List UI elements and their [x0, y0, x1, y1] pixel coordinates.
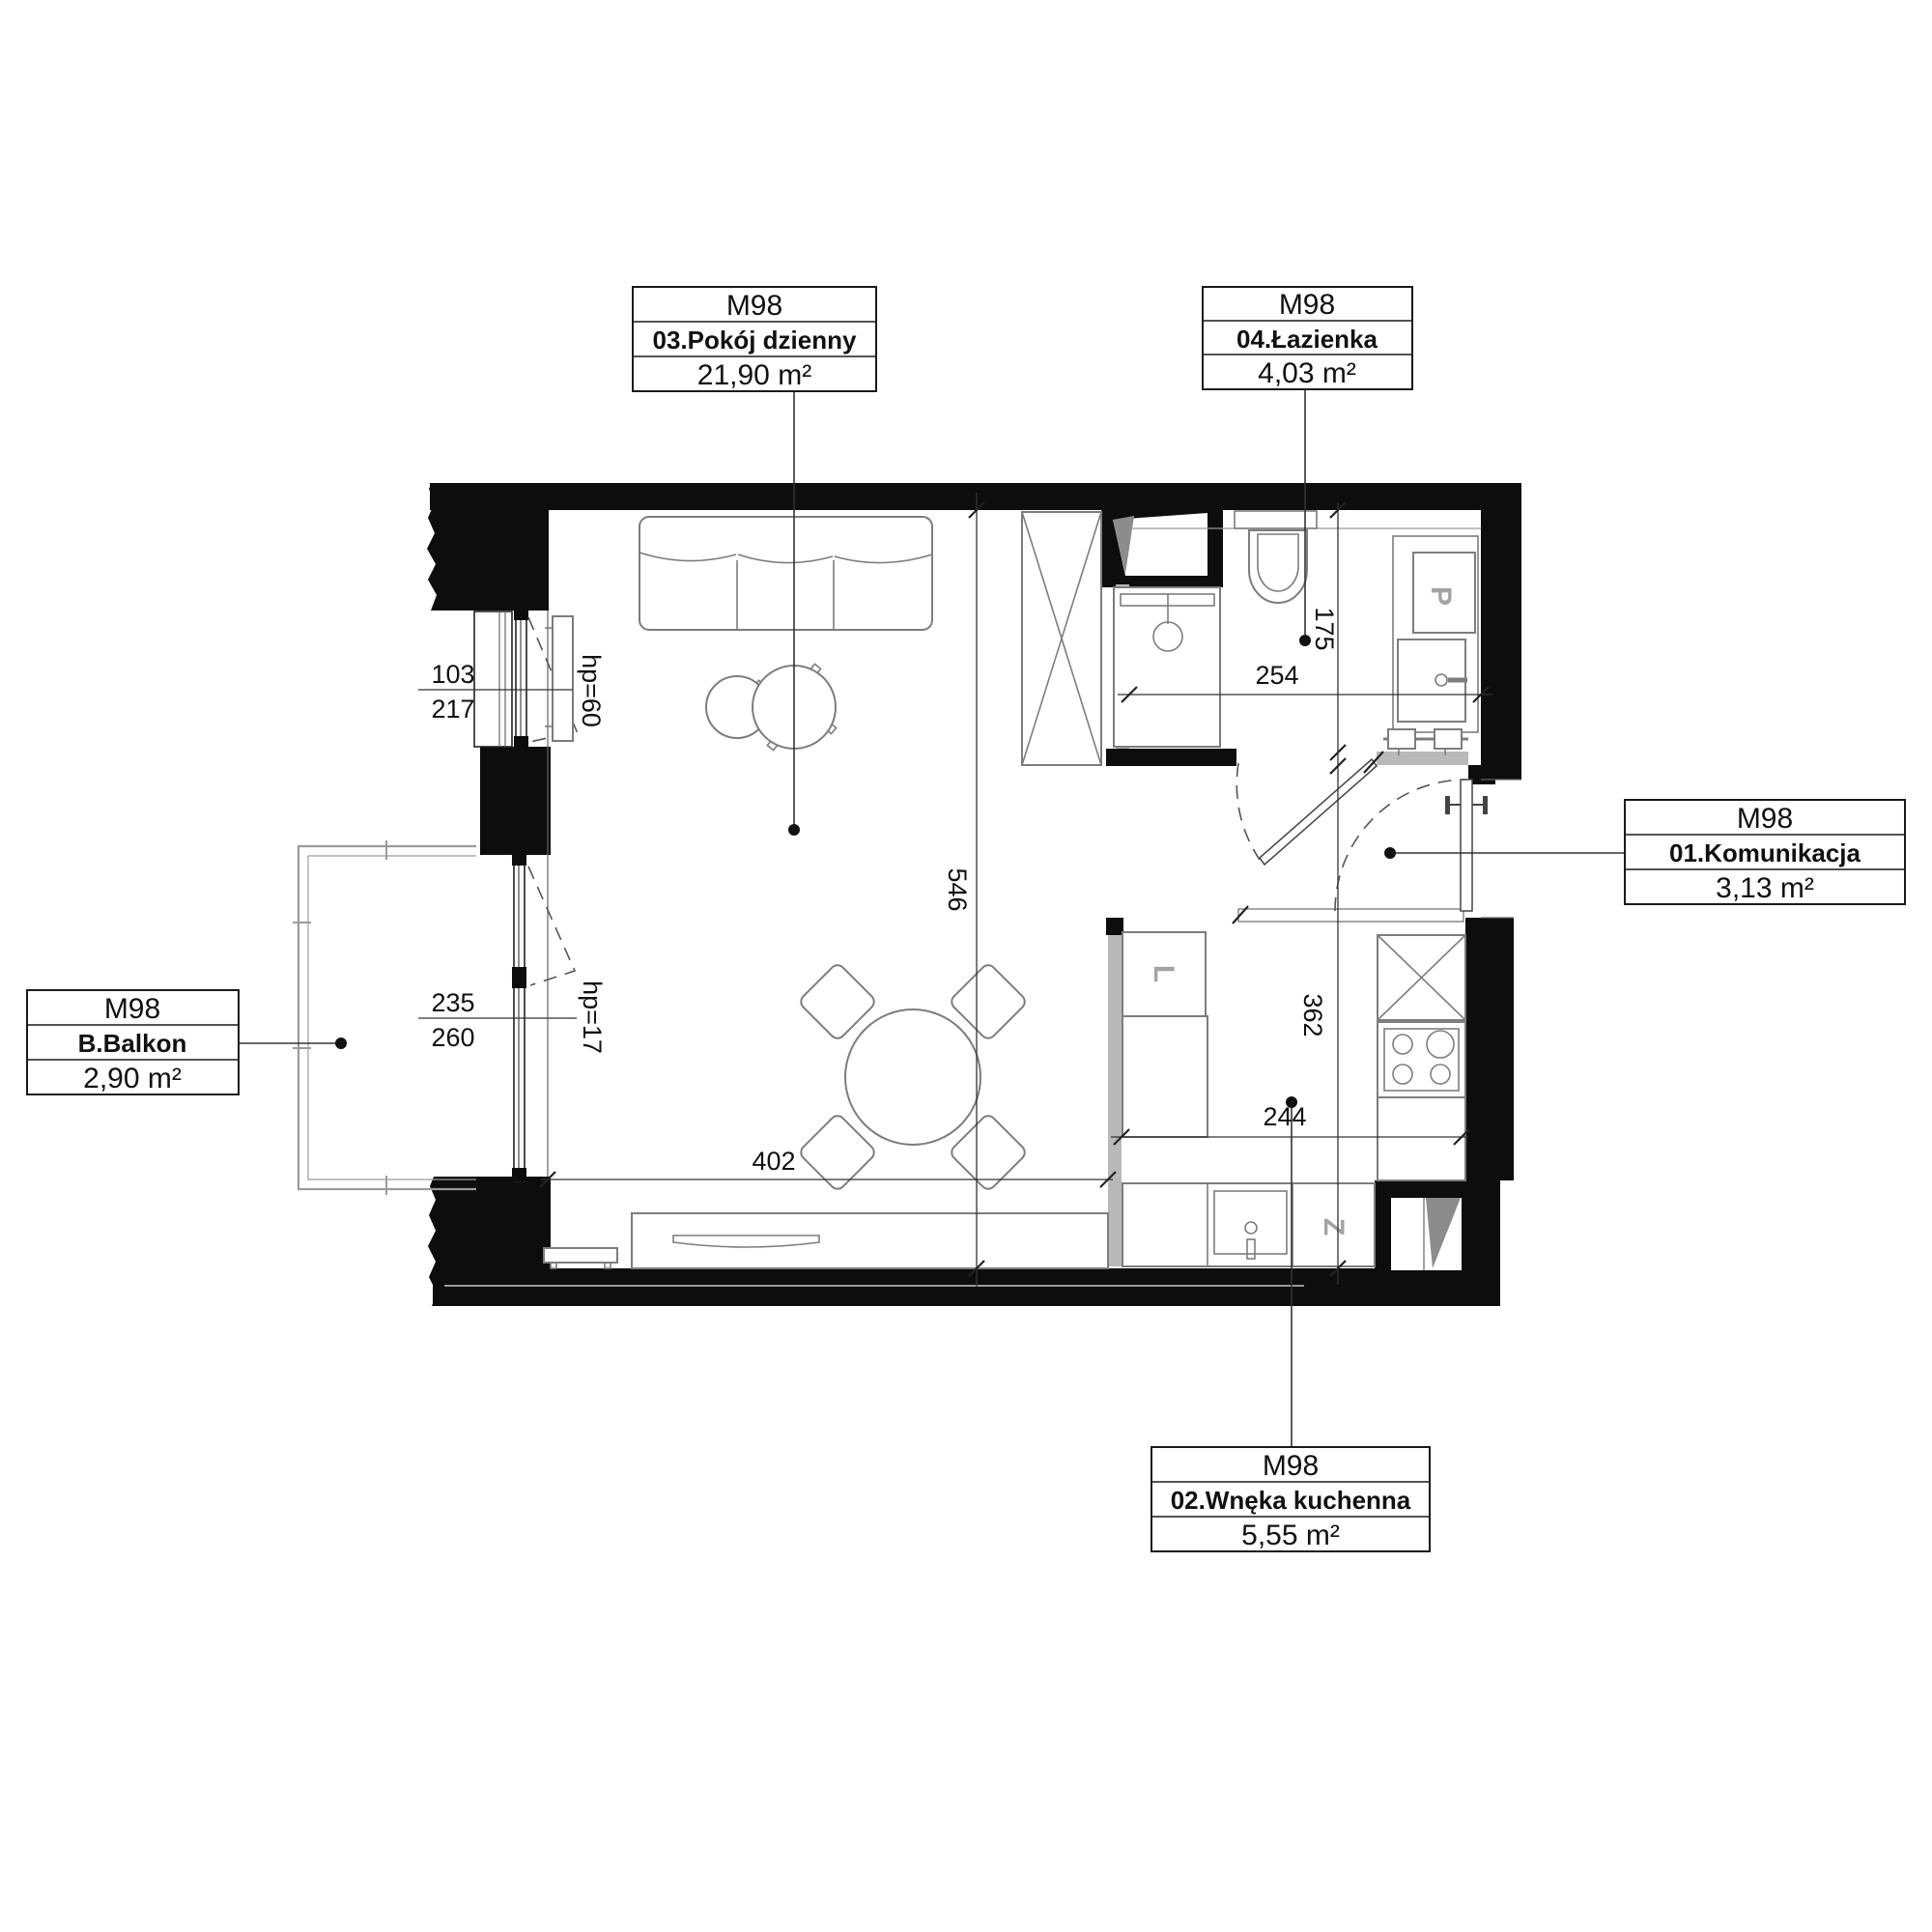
entry-door-handle-out — [1483, 796, 1488, 814]
bathroom-door — [1236, 752, 1383, 865]
floor-plan-canvas: P L Z — [0, 0, 1932, 1932]
dim-balcony-door-upper: 235 — [431, 988, 474, 1017]
leader-dot-living — [788, 824, 800, 836]
bathroom-door-swing — [1236, 763, 1260, 860]
label-room-name: B.Balkon — [78, 1029, 187, 1058]
balcony-door-cap-mid — [512, 967, 526, 988]
dim-kitchen-depth: 362 — [1298, 993, 1327, 1037]
dim-living-width: 402 — [752, 1147, 795, 1176]
label-room-area: 5,55 m² — [1241, 1520, 1340, 1551]
radiator-living — [553, 616, 573, 741]
shaft-bottom-frame-left — [1375, 1180, 1391, 1285]
label-unit: M98 — [726, 290, 782, 322]
kitchen-wall-west — [1108, 935, 1122, 1266]
dining-set — [798, 962, 1028, 1192]
wall-right-bathroom — [1481, 510, 1521, 780]
kitchen-cabinet-tall — [1122, 1016, 1207, 1137]
label-unit: M98 — [1279, 289, 1335, 321]
balcony-door-opening-dash — [528, 867, 575, 985]
floor-plan-page: P L Z — [0, 0, 1932, 1932]
fridge-letter: L — [1148, 965, 1179, 982]
dining-table — [845, 1009, 980, 1145]
label-box-balcony: M98 B.Balkon 2,90 m² — [27, 990, 239, 1094]
window-upper — [474, 608, 577, 749]
label-room-area: 4,03 m² — [1258, 357, 1356, 389]
label-box-hall: M98 01.Komunikacja 3,13 m² — [1625, 800, 1905, 904]
label-room-name: 04.Łazienka — [1236, 325, 1378, 354]
balcony-door-cap-top — [512, 852, 526, 866]
wall-left-mid — [480, 747, 551, 855]
leader-dot-hall — [1384, 847, 1396, 859]
bathroom-wall-south-right — [1377, 752, 1468, 765]
doors — [1236, 752, 1488, 911]
dim-balcony-door-hp: hp=17 — [578, 980, 607, 1054]
label-unit: M98 — [104, 993, 160, 1025]
dim-bathroom-depth: 175 — [1310, 607, 1339, 650]
dim-bathroom-width: 254 — [1255, 661, 1298, 690]
bathroom-door-leaf — [1260, 759, 1377, 865]
bathroom-wall-south-left — [1106, 749, 1236, 766]
wall-right-kitchen — [1465, 918, 1514, 1180]
wall-top — [430, 483, 1521, 510]
label-box-bathroom: M98 04.Łazienka 4,03 m² — [1203, 287, 1412, 389]
dishwasher-letter: Z — [1318, 1218, 1350, 1236]
washbasin-cabinet — [1114, 587, 1220, 747]
washer-letter: P — [1425, 586, 1457, 606]
entry-door-leaf — [1461, 780, 1472, 911]
sofa — [639, 517, 932, 630]
label-room-name: 02.Wnęka kuchenna — [1171, 1486, 1411, 1515]
window-reveal — [474, 611, 512, 747]
label-room-name: 01.Komunikacja — [1669, 838, 1861, 867]
shaft-bottom-frame-bottom — [1375, 1270, 1500, 1306]
balcony-door-cap-bottom — [512, 1168, 526, 1181]
bathroom-radiator-box — [1388, 729, 1415, 749]
dim-window-hp: hp=60 — [577, 654, 606, 727]
kitchen-counter-right — [1378, 1097, 1465, 1180]
windows — [474, 608, 577, 1181]
kitchen-wall-cap — [1106, 918, 1123, 935]
dimensions: 546 402 254 175 362 244 103 217 hp=60 23… — [418, 493, 1492, 1287]
label-box-living: M98 03.Pokój dzienny 21,90 m² — [633, 287, 876, 391]
bathroom-radiator-box — [1435, 729, 1462, 749]
entry-door — [1335, 780, 1488, 911]
window-cap-bottom — [514, 736, 528, 749]
label-room-area: 21,90 m² — [697, 359, 811, 391]
sofa-body — [639, 517, 932, 630]
dim-window-upper: 103 — [431, 660, 474, 689]
tv-area — [544, 1213, 1108, 1268]
dim-kitchen-width: 244 — [1263, 1102, 1306, 1131]
wardrobe — [1022, 512, 1101, 765]
label-box-kitchen: M98 02.Wnęka kuchenna 5,55 m² — [1151, 1447, 1430, 1551]
balcony-door — [512, 852, 575, 1181]
tv-sideboard — [632, 1213, 1108, 1268]
hall-kitchen-boundary-bar — [1238, 909, 1463, 922]
furniture-living — [544, 512, 1108, 1268]
wall-bottom — [433, 1268, 1500, 1306]
dim-window-lower: 217 — [431, 695, 474, 724]
leader-dot-kitchen — [1286, 1096, 1297, 1108]
label-room-area: 2,90 m² — [83, 1063, 182, 1094]
wall-corner-top-left — [427, 483, 549, 611]
leader-dot-balcony — [335, 1037, 347, 1049]
dim-balcony-door-lower: 260 — [431, 1023, 474, 1052]
label-unit: M98 — [1737, 803, 1793, 835]
label-room-name: 03.Pokój dzienny — [653, 326, 857, 355]
bench — [544, 1248, 617, 1263]
label-room-area: 3,13 m² — [1716, 872, 1814, 904]
label-unit: M98 — [1263, 1450, 1319, 1482]
stove — [1378, 1022, 1465, 1097]
leader-dot-bathroom — [1299, 635, 1311, 646]
shaft-bottom-frame-top — [1375, 1180, 1500, 1198]
dim-living-depth: 546 — [943, 867, 972, 911]
coffee-tables — [706, 664, 837, 750]
window-cap-top — [514, 608, 528, 620]
entry-door-handle-in — [1445, 796, 1450, 814]
